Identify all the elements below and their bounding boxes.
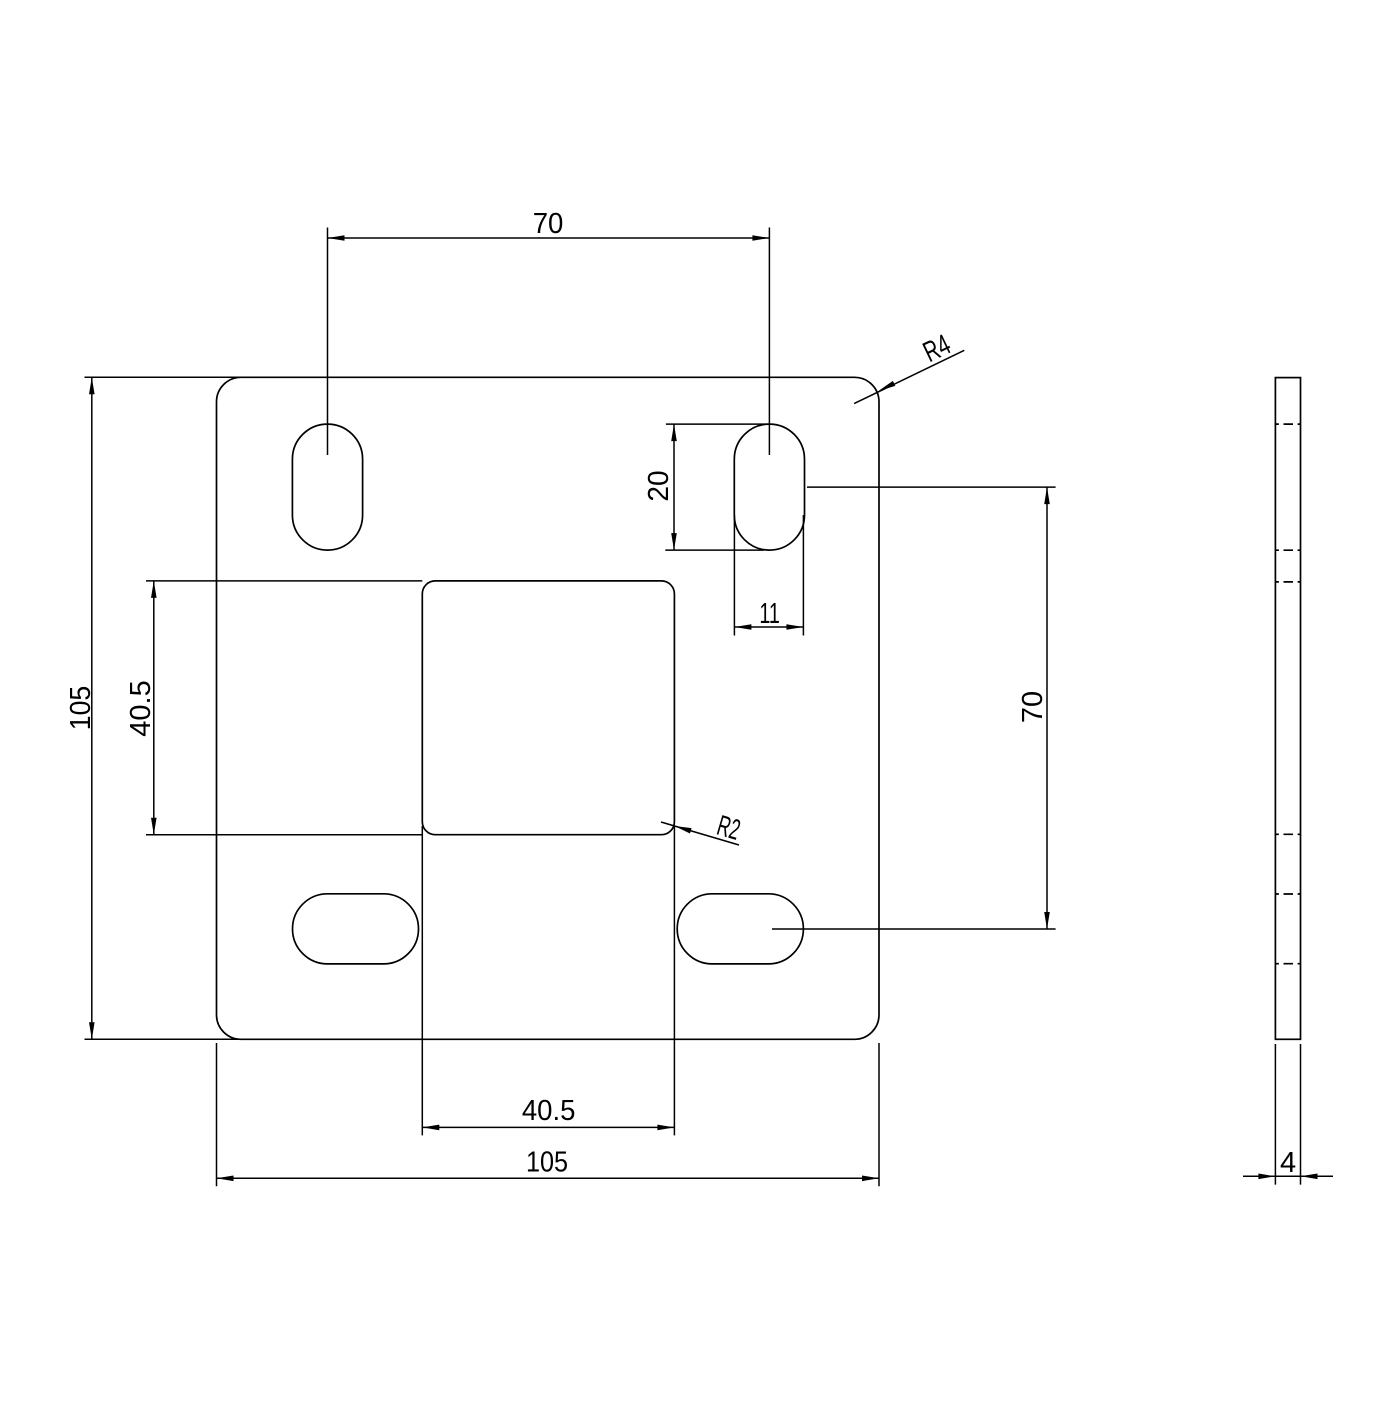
svg-text:105: 105 — [526, 1145, 568, 1178]
svg-text:4: 4 — [1280, 1147, 1296, 1179]
svg-text:11: 11 — [759, 598, 779, 630]
svg-text:40.5: 40.5 — [522, 1093, 576, 1126]
svg-text:70: 70 — [533, 206, 564, 239]
svg-text:40.5: 40.5 — [125, 680, 157, 736]
svg-text:105: 105 — [64, 686, 96, 731]
svg-text:20: 20 — [643, 470, 675, 501]
svg-text:70: 70 — [1017, 691, 1049, 723]
